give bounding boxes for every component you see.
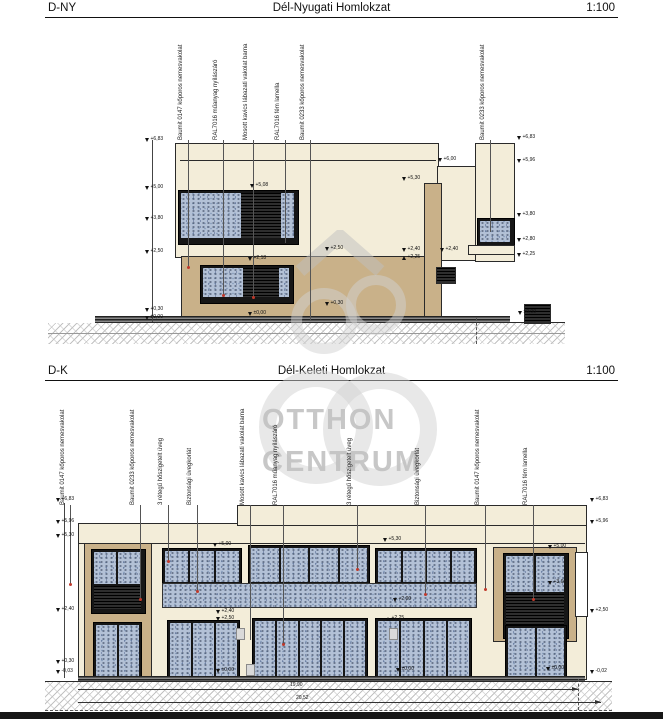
pane-row	[253, 619, 367, 678]
level-triangle-icon	[56, 660, 60, 664]
level-triangle-icon	[386, 617, 390, 621]
material-label: 3 rétegű hőszigetelt üveg	[347, 438, 354, 505]
elevation-marker: +5,08	[250, 183, 268, 188]
glass-pane	[300, 621, 320, 676]
elevation-marker: +2,50	[325, 246, 343, 251]
glass-pane	[448, 621, 469, 676]
level-chain-line	[152, 140, 153, 322]
material-label: Baumit 0147 kőporos nemesvakolat	[475, 410, 482, 505]
elevation-marker: +6,83	[590, 497, 608, 502]
elevation-marker: +3,80	[145, 216, 163, 221]
level-triangle-icon	[325, 247, 329, 251]
lamella-panel	[243, 268, 279, 297]
elevation-marker: +3,60	[548, 580, 566, 585]
leader-line	[140, 505, 141, 600]
elevation-marker: ±0,00	[216, 668, 234, 673]
material-label: Baumit 0147 kőporos nemesvakolat	[60, 410, 67, 505]
glass-balustrade	[162, 583, 477, 608]
pane-row	[249, 546, 369, 584]
bottom-elevation-header: D-K Dél-Keleti Homlokzat 1:100	[48, 365, 615, 380]
level-triangle-icon	[248, 312, 252, 316]
level-triangle-icon	[402, 256, 406, 260]
glass-pane	[508, 628, 535, 676]
level-triangle-icon	[402, 248, 406, 252]
glass-pane	[170, 623, 191, 676]
glass-pane	[193, 623, 214, 676]
level-triangle-icon	[393, 598, 397, 602]
lower-window-band	[200, 265, 294, 304]
parapet-line	[180, 160, 436, 161]
elevation-marker: +3,80	[517, 212, 535, 217]
elevation-marker: ±0,00	[518, 310, 536, 315]
leader-line	[533, 505, 534, 600]
leader-line	[253, 140, 254, 298]
balcony-slab	[468, 245, 515, 255]
glass-pane	[118, 552, 141, 584]
glass-door	[93, 622, 142, 679]
glass-pane	[190, 551, 213, 582]
glass-pane	[403, 551, 426, 582]
level-triangle-icon	[56, 608, 60, 612]
level-triangle-icon	[145, 308, 149, 312]
elevation-marker: +6,83	[145, 137, 163, 142]
annotation-tag	[236, 628, 245, 640]
annotation-tag	[246, 664, 255, 676]
glass-pane	[427, 551, 450, 582]
elevation-marker: -0,03	[56, 669, 73, 674]
elevation-marker: +5,96	[517, 158, 535, 163]
material-label: Baumit 0233 kőporos nemesvakolat	[480, 45, 487, 140]
elevation-marker: +2,80	[517, 237, 535, 242]
elevation-marker: +0,30	[56, 659, 74, 664]
small-vent-panel	[436, 267, 456, 284]
level-triangle-icon	[517, 136, 521, 140]
glass-pane	[345, 621, 365, 676]
glass-pane	[96, 625, 117, 676]
level-triangle-icon	[56, 670, 60, 674]
dimension-text: 19,90	[290, 683, 303, 688]
glass-pane	[281, 193, 294, 238]
elevation-marker: +2,40	[440, 247, 458, 252]
level-triangle-icon	[248, 257, 252, 261]
header-rule-top	[45, 17, 618, 18]
material-label: Mosott kavics lábazati vakolat barna	[240, 409, 247, 505]
elevation-marker: +5,30	[383, 537, 401, 542]
level-triangle-icon	[325, 302, 329, 306]
ground-sub-line	[48, 333, 565, 334]
level-triangle-icon	[590, 498, 594, 502]
level-triangle-icon	[548, 545, 552, 549]
level-triangle-icon	[145, 138, 149, 142]
view-scale-top: 1:100	[586, 2, 615, 14]
elevation-marker: -0,02	[590, 669, 607, 674]
elevation-marker: +5,00	[213, 542, 231, 547]
elevation-marker: ±0,00	[145, 315, 163, 320]
material-label: Baumit 0233 kőporos nemesvakolat	[130, 410, 137, 505]
glass-pane	[216, 551, 239, 582]
glass-pane	[181, 193, 241, 238]
leader-line	[197, 505, 198, 592]
elevation-marker: +6,83	[56, 497, 74, 502]
elevation-marker: +2,40	[216, 609, 234, 614]
glass-door	[252, 618, 368, 679]
glass-pane	[340, 548, 368, 582]
material-label: RAL7016 műanyag nyílászáró	[213, 60, 220, 140]
elevation-marker: +2,18	[248, 256, 266, 261]
leader-line	[357, 505, 358, 570]
upper-window-group	[248, 545, 370, 585]
dimension-extension-line	[578, 679, 579, 710]
level-triangle-icon	[216, 669, 220, 673]
glass-pane	[310, 548, 338, 582]
level-triangle-icon	[56, 498, 60, 502]
leader-line	[285, 140, 286, 243]
glass-pane	[322, 621, 342, 676]
leader-line	[425, 505, 426, 595]
leader-line	[250, 505, 251, 640]
elevation-marker: +5,96	[56, 519, 74, 524]
material-label: Biztonsági üvegkorlát	[187, 448, 194, 505]
level-triangle-icon	[517, 238, 521, 242]
glass-pane	[251, 548, 279, 582]
elevation-marker: +5,96	[590, 519, 608, 524]
elevation-marker: +2,50	[216, 616, 234, 621]
material-label: Mosott kavics lábazati vakolat barna	[243, 44, 250, 140]
material-label: RAL7016 fém lamella	[275, 83, 282, 140]
watermark-text-line2: CENTRUM	[262, 446, 421, 479]
level-triangle-icon	[517, 159, 521, 163]
elevation-marker: +2,25	[517, 252, 535, 257]
balcony-window	[477, 218, 515, 247]
elevation-marker: +5,00	[548, 544, 566, 549]
dimension-arrow-icon	[572, 687, 578, 691]
elevation-marker: +2,40	[56, 607, 74, 612]
glass-pane	[281, 548, 309, 582]
pane-row	[94, 623, 141, 678]
glass-pane	[277, 621, 297, 676]
upper-window-group	[162, 548, 242, 585]
wall-pilaster	[575, 552, 588, 617]
elevation-marker: +0,30	[145, 307, 163, 312]
glass-pane	[279, 268, 289, 297]
level-triangle-icon	[440, 248, 444, 252]
upper-window-group	[375, 548, 477, 585]
level-triangle-icon	[145, 217, 149, 221]
level-triangle-icon	[56, 520, 60, 524]
pane-row	[376, 549, 476, 584]
level-triangle-icon	[396, 668, 400, 672]
left-bay-window	[91, 549, 146, 614]
level-triangle-icon	[216, 610, 220, 614]
leader-line	[188, 140, 189, 268]
glass-pane	[378, 551, 401, 582]
level-triangle-icon	[383, 538, 387, 542]
material-label: RAL7016 fém lamella	[523, 448, 530, 505]
glass-pane	[452, 551, 475, 582]
header-rule-bottom	[45, 380, 618, 381]
level-triangle-icon	[518, 311, 522, 315]
level-triangle-icon	[216, 617, 220, 621]
dimension-arrow-icon	[595, 700, 601, 704]
elevation-marker: +2,25	[386, 616, 404, 621]
material-label: RAL7016 műanyag nyílászáró	[273, 425, 280, 505]
raised-parapet	[237, 505, 587, 526]
material-label: Baumit 0147 kőporos nemesvakolat	[178, 45, 185, 140]
glass-pane	[536, 556, 564, 592]
upper-window-band	[178, 190, 299, 245]
material-label: Biztonsági üvegkorlát	[415, 448, 422, 505]
elevation-marker: +5,30	[402, 176, 420, 181]
level-triangle-icon	[56, 534, 60, 538]
reference-dash-line	[476, 318, 477, 344]
glass-pane	[255, 621, 275, 676]
glass-pane	[94, 552, 116, 584]
annotation-tag	[389, 628, 398, 640]
elevation-marker: +5,00	[145, 185, 163, 190]
level-triangle-icon	[517, 253, 521, 257]
elevation-marker: +6,00	[438, 157, 456, 162]
level-triangle-icon	[145, 186, 149, 190]
material-label: 3 rétegű hőszigetelt üveg	[158, 438, 165, 505]
level-triangle-icon	[145, 316, 149, 320]
elevation-marker: +0,30	[325, 301, 343, 306]
leader-line	[168, 505, 169, 562]
view-scale-bottom: 1:100	[586, 365, 615, 377]
level-triangle-icon	[517, 213, 521, 217]
level-triangle-icon	[250, 184, 254, 188]
level-triangle-icon	[438, 158, 442, 162]
level-triangle-icon	[590, 609, 594, 613]
sheet: D-NY Dél-Nyugati Homlokzat 1:100 Baumit …	[0, 0, 663, 721]
level-triangle-icon	[213, 543, 217, 547]
glass-pane	[480, 221, 510, 242]
elevation-marker: +2,90	[393, 597, 411, 602]
level-chain-line	[64, 503, 65, 678]
level-triangle-icon	[402, 177, 406, 181]
lamella-panel	[94, 586, 141, 609]
leader-line	[490, 140, 491, 232]
elevation-marker: ±0,00	[396, 667, 414, 672]
elevation-marker: +2,50	[145, 249, 163, 254]
top-elevation-header: D-NY Dél-Nyugati Homlokzat 1:100	[48, 2, 615, 17]
level-triangle-icon	[145, 250, 149, 254]
view-title-bottom: Dél-Keleti Homlokzat	[48, 365, 615, 377]
ground-hatch	[45, 682, 612, 711]
elevation-marker: +2,40	[402, 247, 420, 252]
pane-row	[163, 549, 241, 584]
leader-line	[310, 140, 311, 320]
elevation-marker: +2,25	[402, 255, 420, 260]
leader-line	[70, 505, 71, 585]
dimension-line	[78, 689, 578, 690]
level-triangle-icon	[548, 581, 552, 585]
material-label: Baumit 0233 kőporos nemesvakolat	[300, 45, 307, 140]
leader-line	[283, 505, 284, 645]
dimension-text: 20,52	[296, 696, 309, 701]
elevation-marker: +6,83	[517, 135, 535, 140]
glass-pane	[506, 556, 534, 592]
lamella-panel	[241, 193, 281, 238]
sheet-footer-bar	[0, 712, 663, 719]
watermark-text-line1: OTTHON	[262, 404, 396, 437]
level-triangle-icon	[590, 520, 594, 524]
dimension-line	[78, 702, 601, 703]
view-title-top: Dél-Nyugati Homlokzat	[48, 2, 615, 14]
elevation-marker: ±0,00	[546, 666, 564, 671]
elevation-marker: +2,50	[590, 608, 608, 613]
glass-pane	[119, 625, 140, 676]
leader-line	[485, 505, 486, 590]
leader-line	[223, 140, 224, 296]
upper-level-line	[78, 543, 585, 544]
glass-pane	[425, 621, 446, 676]
level-triangle-icon	[590, 670, 594, 674]
elevation-marker: +5,30	[56, 533, 74, 538]
elevation-marker: ±0,00	[248, 311, 266, 316]
level-triangle-icon	[546, 667, 550, 671]
